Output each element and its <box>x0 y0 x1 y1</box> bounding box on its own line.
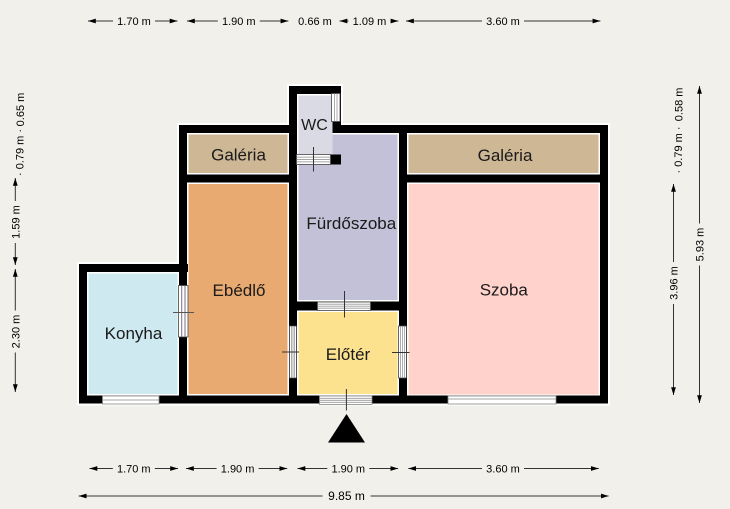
svg-text:3.96 m: 3.96 m <box>669 266 681 300</box>
svg-text:0.65 m: 0.65 m <box>15 93 27 127</box>
svg-text:Ebédlő: Ebédlő <box>213 281 266 300</box>
svg-text:Galéria: Galéria <box>478 146 533 165</box>
svg-text:0.58 m: 0.58 m <box>674 88 686 122</box>
svg-text:Galéria: Galéria <box>211 146 266 165</box>
svg-text:Konyha: Konyha <box>105 324 163 343</box>
svg-text:3.60 m: 3.60 m <box>486 464 520 476</box>
svg-text:1.70 m: 1.70 m <box>117 464 151 476</box>
svg-text:1.90 m: 1.90 m <box>221 464 255 476</box>
svg-text:0.66 m: 0.66 m <box>298 16 332 28</box>
svg-text:3.60 m: 3.60 m <box>486 16 520 28</box>
svg-text:· 0.79 m ·: · 0.79 m · <box>673 126 685 173</box>
svg-text:1.90 m: 1.90 m <box>331 464 365 476</box>
svg-text:· 0.79 m ·: · 0.79 m · <box>14 129 26 176</box>
svg-text:Előtér: Előtér <box>326 345 371 364</box>
svg-text:5.93 m: 5.93 m <box>695 228 707 262</box>
svg-text:Fürdőszoba: Fürdőszoba <box>306 214 396 233</box>
svg-text:1.09 m: 1.09 m <box>353 16 387 28</box>
svg-text:1.90 m: 1.90 m <box>222 16 256 28</box>
svg-text:2.30 m: 2.30 m <box>10 315 22 349</box>
svg-text:9.85 m: 9.85 m <box>328 489 365 503</box>
svg-text:WC: WC <box>301 117 328 134</box>
svg-text:1.70 m: 1.70 m <box>117 16 151 28</box>
svg-text:Szoba: Szoba <box>480 281 529 300</box>
svg-text:1.59 m: 1.59 m <box>10 205 22 239</box>
